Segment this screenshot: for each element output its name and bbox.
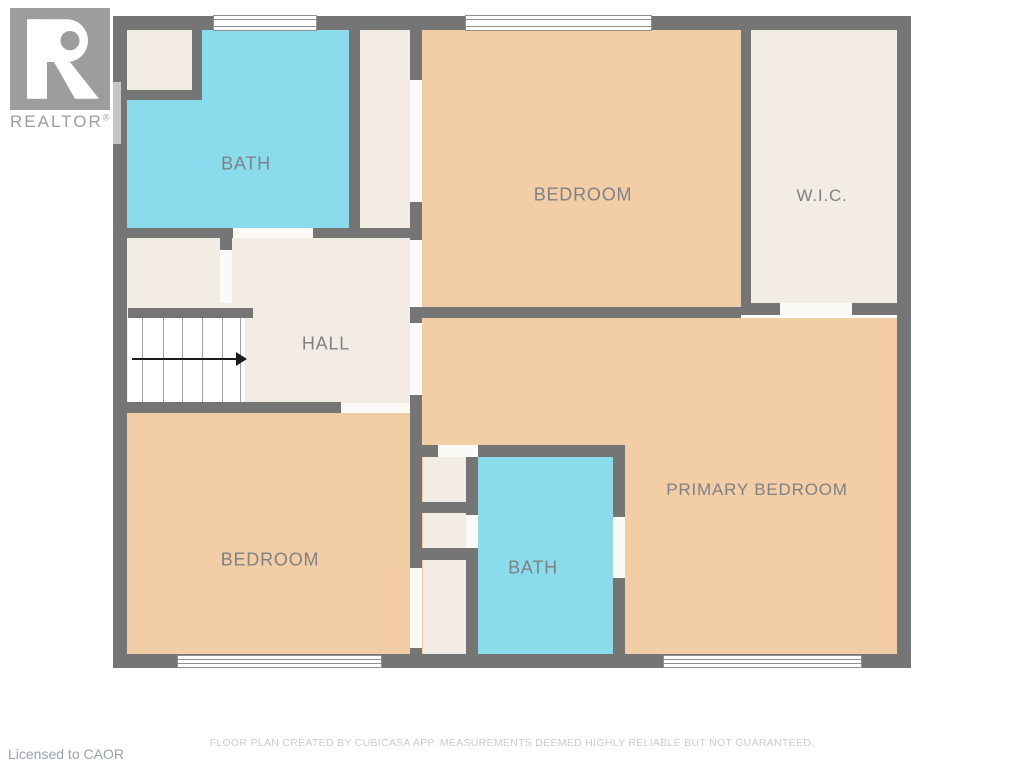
room-label-hall: HALL (302, 334, 350, 355)
realtor-logo-wordmark: REALTOR® (10, 112, 122, 132)
realtor-logo-name: REALTOR (10, 112, 103, 131)
room-label-bath-bottom: BATH (508, 558, 558, 579)
stair-tread-line (142, 318, 143, 402)
wall (127, 90, 202, 100)
door-opening (780, 303, 852, 315)
wall (410, 395, 422, 568)
door-opening (613, 517, 625, 578)
window (177, 655, 382, 668)
window-pane-line (466, 26, 651, 27)
wall (413, 548, 478, 560)
window-pane-line (214, 26, 316, 27)
window-pane-line (466, 19, 651, 20)
door-opening (410, 568, 422, 648)
wall (313, 228, 410, 238)
disclaimer-text: FLOOR PLAN CREATED BY CUBICASA APP. MEAS… (0, 737, 1024, 749)
window-pane-line (178, 659, 381, 660)
wall (128, 308, 253, 318)
window-pane-line (178, 663, 381, 664)
window (663, 655, 862, 668)
room-bedroom-bottom (127, 413, 410, 655)
realtor-logo-r-icon (10, 8, 110, 110)
window-pane-line (664, 659, 861, 660)
window-pane-line (664, 663, 861, 664)
wall (410, 30, 422, 80)
wall (741, 30, 751, 315)
registered-trademark-icon: ® (103, 112, 110, 122)
door-opening (438, 445, 478, 457)
room-bedroom-top (422, 30, 741, 307)
wall (349, 30, 360, 238)
bedroom-closet-corridor (360, 30, 410, 228)
stair-tread-line (222, 318, 223, 402)
door-opening (410, 323, 422, 395)
realtor-logo (10, 8, 110, 110)
room-label-bedroom-top: BEDROOM (534, 185, 633, 206)
window (465, 15, 652, 31)
room-bath-bottom (478, 457, 613, 655)
room-wic (751, 30, 897, 303)
stairs-direction-arrow (132, 358, 236, 360)
staircase (128, 318, 245, 402)
door-opening (233, 228, 313, 238)
wall (410, 307, 422, 323)
room-label-bedroom-bottom: BEDROOM (221, 550, 320, 571)
window-pane-line (214, 19, 316, 20)
wall (852, 303, 897, 315)
wall (751, 303, 780, 315)
wall (220, 228, 232, 250)
wall (410, 202, 422, 240)
wall (422, 307, 741, 318)
room-label-wic: W.I.C. (796, 186, 847, 206)
wall (410, 648, 422, 658)
room-label-primary-bedroom: PRIMARY BEDROOM (666, 480, 847, 500)
wall (127, 228, 233, 238)
wall (113, 402, 341, 413)
door-opening (410, 240, 422, 307)
stairs-direction-arrow-head (236, 352, 247, 366)
stair-tread-line (182, 318, 183, 402)
door-opening (220, 250, 232, 303)
stair-tread-line (202, 318, 203, 402)
stair-tread-line (163, 318, 164, 402)
floor-plan: BATH BEDROOM W.I.C. HALL PRIMARY BEDROOM… (0, 0, 1024, 768)
wall (413, 502, 478, 513)
room-label-bath-top: BATH (221, 154, 271, 175)
door-opening (466, 515, 478, 548)
room-bath-top (202, 30, 349, 100)
door-opening (410, 80, 422, 202)
bath-corner-closet (127, 30, 192, 90)
license-text: Licensed to CAOR (8, 746, 124, 762)
wall (897, 16, 911, 668)
door-opening (341, 403, 410, 413)
window (213, 15, 317, 31)
